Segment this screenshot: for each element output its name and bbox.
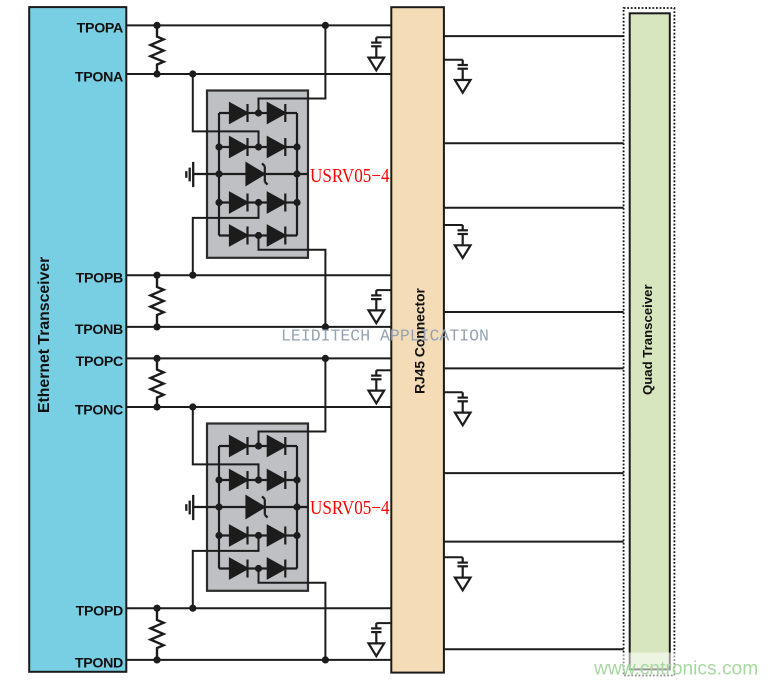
svg-text:TPOND: TPOND xyxy=(75,655,123,671)
svg-text:www.cntronics.com: www.cntronics.com xyxy=(593,659,758,680)
svg-text:TPOPA: TPOPA xyxy=(77,21,123,37)
svg-text:USRV05−4: USRV05−4 xyxy=(310,498,390,519)
svg-text:USRV05−4: USRV05−4 xyxy=(310,166,390,187)
svg-text:TPONC: TPONC xyxy=(75,402,123,418)
svg-text:LEIDITECH APPLICATION: LEIDITECH APPLICATION xyxy=(281,327,489,346)
svg-text:Quad Transceiver: Quad Transceiver xyxy=(640,284,655,395)
svg-text:Ethernet Transceiver: Ethernet Transceiver xyxy=(36,257,53,413)
svg-text:TPOPC: TPOPC xyxy=(76,354,123,370)
svg-text:TPOPD: TPOPD xyxy=(76,604,123,620)
svg-text:TPONA: TPONA xyxy=(75,69,123,85)
svg-text:TPOPB: TPOPB xyxy=(76,271,123,287)
svg-text:TPONB: TPONB xyxy=(75,322,123,338)
